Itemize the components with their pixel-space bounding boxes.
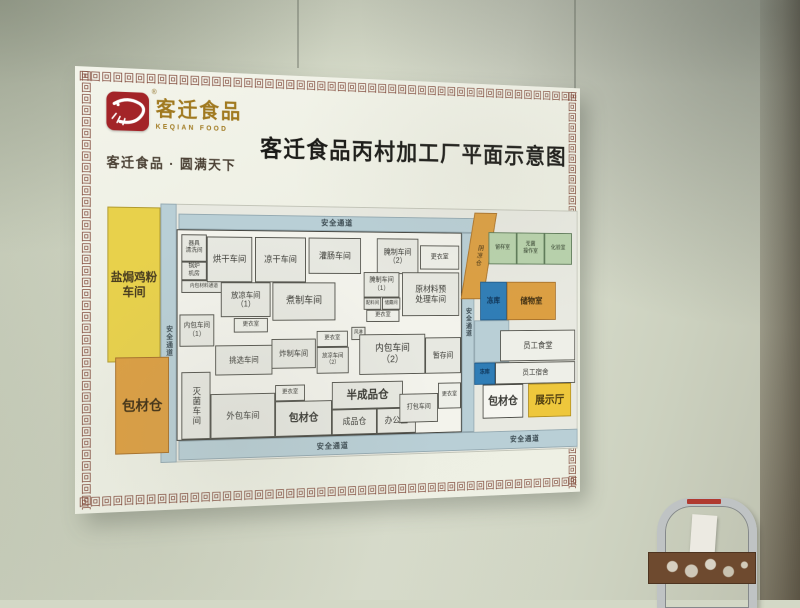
wall-corner-shadow xyxy=(760,0,800,600)
label-passage-bottom-main: 安全通道 xyxy=(301,438,363,454)
room-temp-storage: 暂存间 xyxy=(425,337,461,374)
room-drying-workshop: 烘干车间 xyxy=(207,236,252,282)
room-sterilization-workshop: 灭菌车间 xyxy=(181,372,210,440)
factory-plan-poster: 回回回回回回回回回回回回回回回回回回回回回回回回回回回回回回回回回回回回回回回回… xyxy=(75,66,580,514)
room-cooling-workshop-1: 放凉车间 （1） xyxy=(221,282,271,317)
room-outer-packing-workshop: 外包车间 xyxy=(211,393,276,439)
hand-truck-plate xyxy=(648,552,756,584)
room-semi-finished-warehouse: 半成品仓 xyxy=(332,381,403,410)
block-salt-baked-chicken-powder-workshop: 盐焗鸡粉 车间 xyxy=(107,207,160,363)
room-changing-f: 更衣室 xyxy=(438,382,461,408)
room-changing-e: 更衣室 xyxy=(275,384,305,401)
room-changing-d: 更衣室 xyxy=(317,331,348,347)
room-staff-canteen: 员工食堂 xyxy=(500,330,575,362)
room-freezer-2: 冻库 xyxy=(474,362,495,384)
wall-seam xyxy=(574,0,576,92)
room-storage: 储物室 xyxy=(507,282,556,320)
room-raw-material-pretreatment: 原材料预 处理车间 xyxy=(402,272,459,316)
label-passage-right: 安全通道 xyxy=(462,294,475,351)
room-curing-workshop-1: 腌制车间 （1） xyxy=(364,272,400,297)
room-selection-workshop: 挑选车间 xyxy=(215,345,272,376)
room-staff-dormitory: 员工宿舍 xyxy=(495,361,575,384)
room-inner-packing-2: 内包车间 （2） xyxy=(359,334,425,375)
room-packaging-warehouse-main: 包材仓 xyxy=(275,400,332,437)
room-utensil-washing: 器具 清洗间 xyxy=(181,234,206,262)
room-ingredient: 配料间 xyxy=(364,298,381,310)
room-sterile-operation: 无菌 操作室 xyxy=(517,233,545,265)
room-storage-small: 储藏间 xyxy=(382,297,400,309)
room-packaging-warehouse-annex: 包材仓 xyxy=(483,384,524,419)
hand-truck-sticker xyxy=(687,499,721,504)
room-curing-workshop-2: 腌制车间 （2） xyxy=(377,238,419,274)
room-boiler: 锅炉 机房 xyxy=(181,262,206,281)
wall-seam xyxy=(297,0,299,68)
room-frying-workshop: 炸制车间 xyxy=(271,339,315,369)
room-cooling-workshop-2: 放凉车间 （2） xyxy=(317,347,349,374)
room-inner-packing-1: 内包车间 （1） xyxy=(179,314,214,346)
room-packing-workshop: 打包车间 xyxy=(399,393,438,423)
floor-plan: 盐焗鸡粉 车间包材仓器具 清洗间锅炉 机房内包材料通道烘干车间凉干车间灌肠车间腌… xyxy=(75,66,580,514)
room-changing-b: 更衣室 xyxy=(366,310,399,322)
label-passage-bottom-annex: 安全通道 xyxy=(496,431,553,447)
room-freezer-1: 冻库 xyxy=(480,282,507,321)
room-exhibition-hall: 展示厅 xyxy=(528,383,571,418)
room-sausage-filling-workshop: 灌肠车间 xyxy=(309,238,361,274)
room-finished-goods-warehouse: 成品仓 xyxy=(332,408,377,435)
room-sample: 留样室 xyxy=(489,232,517,264)
hand-truck xyxy=(645,488,760,600)
paper-tag xyxy=(690,514,718,554)
room-cool-dry-workshop: 凉干车间 xyxy=(255,237,306,282)
room-changing-c: 更衣室 xyxy=(234,318,268,333)
label-passage-left: 安全通道 xyxy=(160,311,176,372)
label-passage-top: 安全通道 xyxy=(310,217,363,231)
room-lab: 化验室 xyxy=(544,233,571,265)
room-changing-a: 更衣室 xyxy=(420,245,459,269)
room-boiling-workshop: 煮制车间 xyxy=(272,282,335,320)
